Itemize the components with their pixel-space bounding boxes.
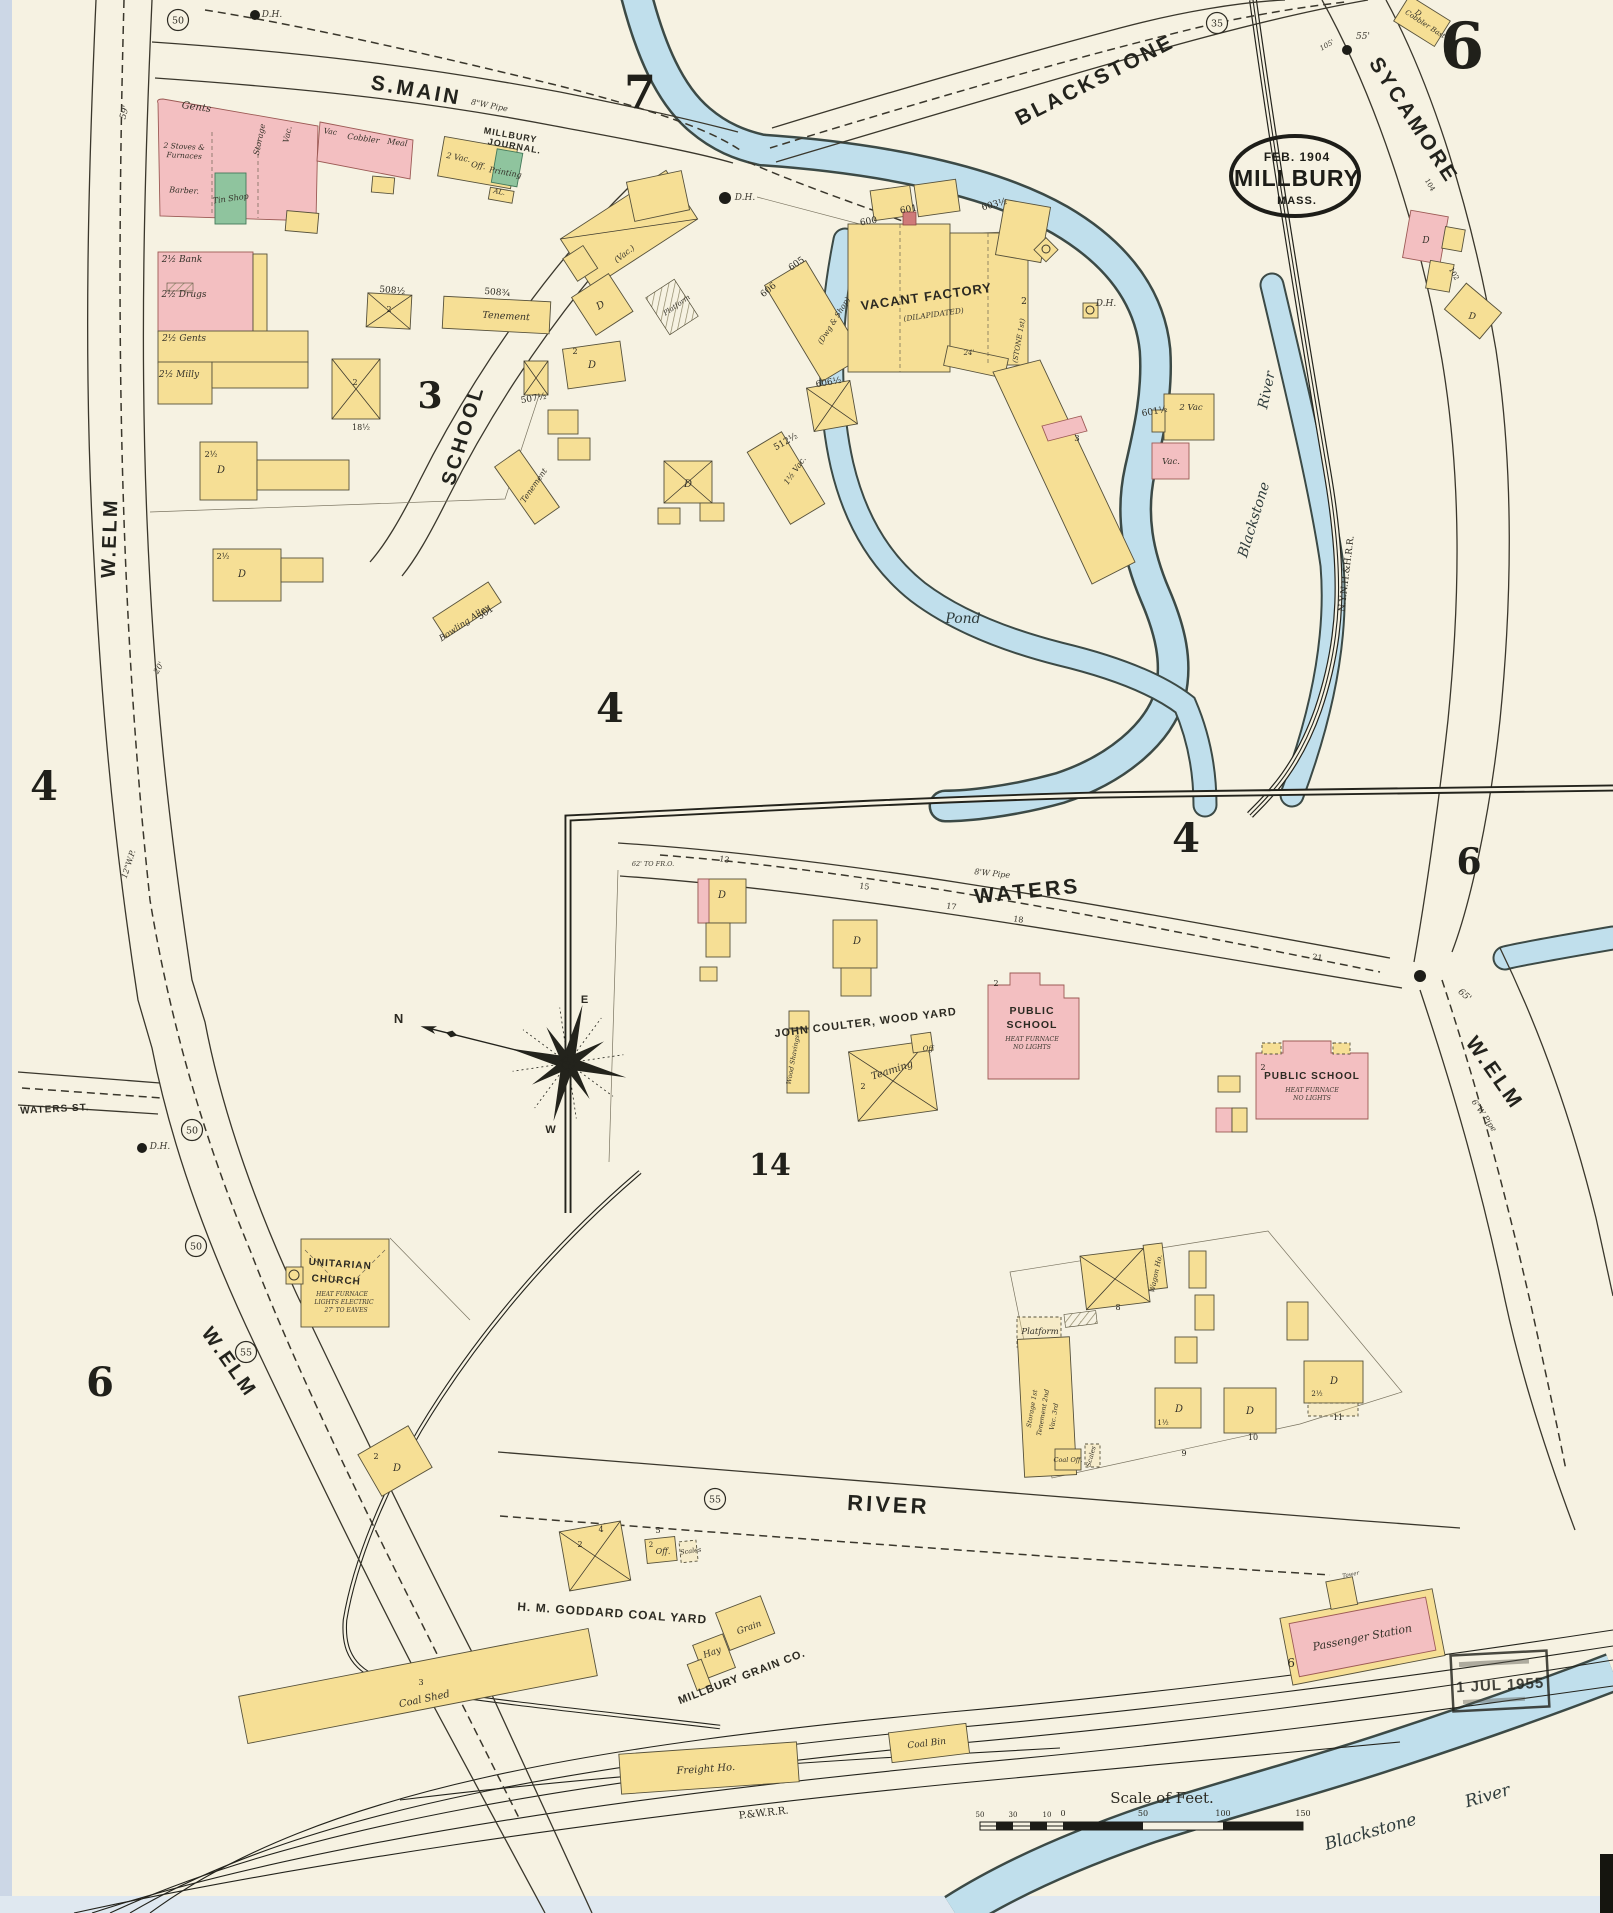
stamp-state: MASS. xyxy=(1277,195,1317,207)
map-label: D xyxy=(237,569,246,580)
page-edge-left xyxy=(0,0,12,1913)
map-label: 10 xyxy=(1043,1811,1052,1819)
map-label: 2½ Milly xyxy=(158,369,200,380)
map-label: 5 xyxy=(655,1526,660,1535)
hydrant-label: D.H. xyxy=(1095,299,1117,309)
map-label: 2½ Gents xyxy=(161,333,206,344)
map-label: 20' xyxy=(151,660,165,676)
map-label: 100 xyxy=(1215,1809,1230,1818)
compass-rose xyxy=(420,1003,628,1122)
stamp-city: MILLBURY xyxy=(1234,165,1360,191)
map-label: 18½ xyxy=(352,423,370,432)
map-label: Off xyxy=(923,1045,935,1053)
map-label: 2 xyxy=(572,347,577,356)
map-label: 15 xyxy=(859,881,870,891)
hydrant-label: D.H. xyxy=(261,10,283,20)
street-label-waters: WATERS xyxy=(973,875,1081,909)
map-label: 2 xyxy=(993,979,998,988)
map-label: 50 xyxy=(1138,1809,1148,1818)
label-blackstone-river: Blackstone xyxy=(1235,480,1273,560)
building-dwelling xyxy=(1398,210,1467,293)
label-public-school-1: SCHOOL xyxy=(1007,1019,1058,1031)
building-dwelling-cluster xyxy=(658,461,724,524)
circled-50: 50 xyxy=(168,10,189,31)
map-label: 2 xyxy=(860,1082,865,1091)
label-public-school-1: PUBLIC xyxy=(1009,1005,1054,1017)
stamp-date: FEB. 1904 xyxy=(1264,150,1330,164)
building-crossed-606half xyxy=(807,381,858,432)
building-crossed-507half xyxy=(524,361,548,395)
map-label: D xyxy=(1174,1404,1183,1415)
sheet-number-4-inset: 4 xyxy=(1172,815,1200,862)
map-label: 2 xyxy=(577,1540,582,1549)
page-edge-bottom xyxy=(0,1896,1613,1913)
label-blackstone-river-south: River xyxy=(1462,1780,1514,1812)
map-label: Coal Off. xyxy=(1054,1456,1083,1464)
street-label-waters-st: WATERS ST. xyxy=(20,1102,90,1117)
map-label: 8'W Pipe xyxy=(974,867,1011,880)
hydrant-label: D.H. xyxy=(149,1142,171,1152)
map-label: HEAT FURNACE xyxy=(315,1291,368,1298)
map-label: D xyxy=(1421,236,1429,246)
map-label: 59' xyxy=(118,104,131,120)
svg-text:50: 50 xyxy=(172,16,184,27)
map-label: Furnaces xyxy=(165,150,202,161)
map-label: 17 xyxy=(946,901,957,911)
svg-text:55: 55 xyxy=(709,1495,721,1506)
map-label: D xyxy=(683,479,692,490)
building-coal-crossed xyxy=(559,1521,630,1591)
map-label: D xyxy=(1245,1406,1254,1417)
sheet-number: 6 xyxy=(1440,9,1485,84)
block-number-14: 14 xyxy=(749,1148,791,1183)
map-label: 3 xyxy=(418,1678,423,1687)
compass-e: E xyxy=(581,994,589,1006)
svg-text:50: 50 xyxy=(186,1126,198,1137)
map-label: 30 xyxy=(1009,1811,1018,1819)
map-label: 2 Vac xyxy=(1178,403,1203,413)
page-corner-mark xyxy=(1600,1854,1613,1913)
map-label: 2 xyxy=(373,1452,378,1461)
street-label-w-elm-lower: W.ELM xyxy=(197,1323,261,1402)
map-label: 65' xyxy=(1456,987,1473,1004)
map-label: 8"W Pipe xyxy=(470,98,509,114)
map-label: 27' TO EAVES xyxy=(323,1307,367,1314)
building-milly xyxy=(158,362,212,404)
label-goddard-coal-yard: H. M. GODDARD COAL YARD xyxy=(517,1599,708,1626)
map-label: HEAT FURNACE xyxy=(1284,1087,1339,1094)
building-vacant-factory xyxy=(848,224,1135,584)
map-label: 8 xyxy=(1115,1303,1120,1312)
svg-text:35: 35 xyxy=(1211,19,1223,30)
map-label: 9 xyxy=(1181,1449,1186,1458)
hydrant-label: D.H. xyxy=(734,193,756,203)
map-label: 62' TO FR.O. xyxy=(632,860,674,868)
map-label: 11 xyxy=(1333,1413,1343,1422)
map-label: 18 xyxy=(1013,914,1024,924)
map-label: HEAT FURNACE xyxy=(1004,1036,1059,1043)
building-passenger-station xyxy=(1275,1562,1445,1685)
map-label: 2 xyxy=(386,305,391,314)
label-blackstone-river: River xyxy=(1255,369,1279,412)
sheet-number-6-left: 6 xyxy=(86,1359,114,1406)
map-label: D xyxy=(392,1463,401,1474)
map-label: Scales xyxy=(680,1545,703,1556)
block-number-7: 7 xyxy=(624,65,656,119)
map-label: 10 xyxy=(1248,1433,1258,1442)
map-label: D xyxy=(1467,311,1477,322)
circled-35: 35 xyxy=(1207,13,1228,34)
building-dwelling-waters-2 xyxy=(833,920,877,996)
map-label: 2½ xyxy=(205,450,218,459)
circled-55: 55 xyxy=(236,1342,257,1363)
sheet-number-4-left: 4 xyxy=(30,763,58,810)
map-label: 3 xyxy=(1074,434,1079,444)
title-stamp: FEB. 1904 MILLBURY MASS. xyxy=(1231,136,1360,216)
block-number-3: 3 xyxy=(417,375,442,417)
block-number-4: 4 xyxy=(596,685,624,732)
map-label: 2 xyxy=(1260,1063,1265,1072)
map-label: 21 xyxy=(1312,952,1323,962)
map-label: Barber. xyxy=(168,185,199,196)
circled-55: 55 xyxy=(705,1489,726,1510)
label-blackstone-river-south: Blackstone xyxy=(1321,1810,1418,1856)
map-label: 150 xyxy=(1295,1809,1310,1818)
map-label: Off. xyxy=(656,1547,671,1556)
circled-50: 50 xyxy=(186,1236,207,1257)
building-dwelling xyxy=(358,1426,432,1497)
railroad-label-pw: P.&W.R.R. xyxy=(738,1805,789,1821)
map-label: 2½ Bank xyxy=(161,254,203,265)
svg-text:50: 50 xyxy=(190,1242,202,1253)
map-label: 6 xyxy=(1287,1656,1295,1670)
map-label: 2½ xyxy=(217,552,230,561)
circled-50: 50 xyxy=(182,1120,203,1141)
map-label: 2½ Drugs xyxy=(160,289,206,300)
map-label: 4 xyxy=(598,1525,603,1534)
map-label: 50 xyxy=(976,1811,985,1819)
map-label: D xyxy=(717,890,726,901)
map-label: D xyxy=(1329,1376,1338,1387)
map-label: 508½ xyxy=(379,284,406,297)
street-label-w-elm-upper: W.ELM xyxy=(98,497,123,578)
map-label: 2 xyxy=(649,1541,653,1549)
svg-text:55: 55 xyxy=(240,1348,252,1359)
map-label: NO LIGHTS xyxy=(1012,1044,1051,1051)
map-label: 105' xyxy=(1318,38,1335,53)
map-label: D xyxy=(852,936,861,947)
label-pond: Pond xyxy=(944,611,980,627)
building-rr-yard xyxy=(1017,1243,1363,1477)
map-label: D xyxy=(587,360,596,371)
label-public-school-2: PUBLIC SCHOOL xyxy=(1264,1071,1360,1082)
map-label: 508¾ xyxy=(484,286,511,299)
map-label: 12"W.P. xyxy=(120,849,138,880)
compass-w: W xyxy=(545,1124,556,1136)
map-label: 2 xyxy=(352,378,357,387)
map-label: 24' xyxy=(963,349,975,357)
map-label: 55' xyxy=(1356,32,1370,42)
map-label: 6"W Pipe xyxy=(1470,1098,1499,1134)
map-label: D xyxy=(216,465,225,476)
compass-n: N xyxy=(394,1011,404,1026)
map-label: LIGHTS ELECTRIC xyxy=(313,1299,374,1306)
map-label: Vac. xyxy=(1162,457,1180,467)
map-label: 2½ xyxy=(1311,1390,1322,1398)
sanborn-map-sheet: FEB. 1904 MILLBURY MASS. 6 1 JUL 1955 Sc… xyxy=(0,0,1613,1913)
building-crossed-18half xyxy=(332,359,380,419)
map-label: 104 xyxy=(1423,177,1437,193)
scale-title: Scale of Feet. xyxy=(1110,1789,1214,1807)
map-label: 2 xyxy=(1021,297,1027,307)
street-label-s-main: S.MAIN xyxy=(369,71,463,110)
map-label: 13 xyxy=(719,854,730,864)
map-label: 0 xyxy=(1060,1809,1065,1818)
sheet-number-6-east: 6 xyxy=(1456,841,1481,883)
street-label-blackstone: BLACKSTONE xyxy=(1012,30,1179,130)
map-label: Platform xyxy=(1020,1327,1058,1337)
map-label: NO LIGHTS xyxy=(1292,1095,1331,1102)
map-label: 1½ xyxy=(1157,1419,1168,1427)
street-label-river: RIVER xyxy=(847,1490,930,1519)
